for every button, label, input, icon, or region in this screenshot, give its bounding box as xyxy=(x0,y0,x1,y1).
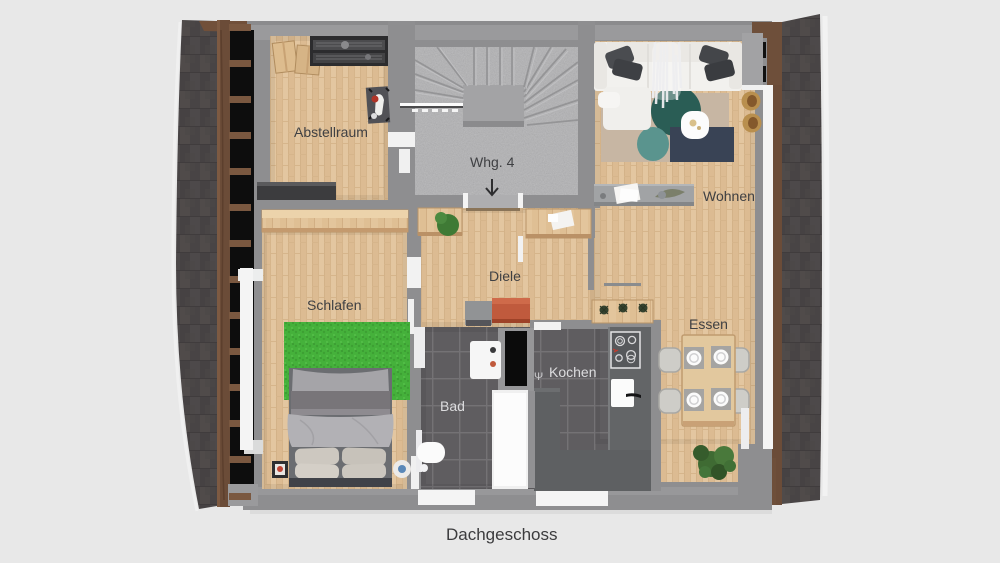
svg-text:Wohnen: Wohnen xyxy=(703,188,755,204)
svg-text:Bad: Bad xyxy=(440,398,465,414)
svg-text:Schlafen: Schlafen xyxy=(307,297,361,313)
svg-text:Abstellraum: Abstellraum xyxy=(294,124,368,140)
svg-text:Diele: Diele xyxy=(489,268,521,284)
svg-text:Kochen: Kochen xyxy=(549,364,596,380)
svg-text:Whg. 4: Whg. 4 xyxy=(470,154,515,170)
svg-text:Ψ: Ψ xyxy=(534,371,543,383)
svg-text:Dachgeschoss: Dachgeschoss xyxy=(446,525,558,544)
svg-text:Essen: Essen xyxy=(689,316,728,332)
